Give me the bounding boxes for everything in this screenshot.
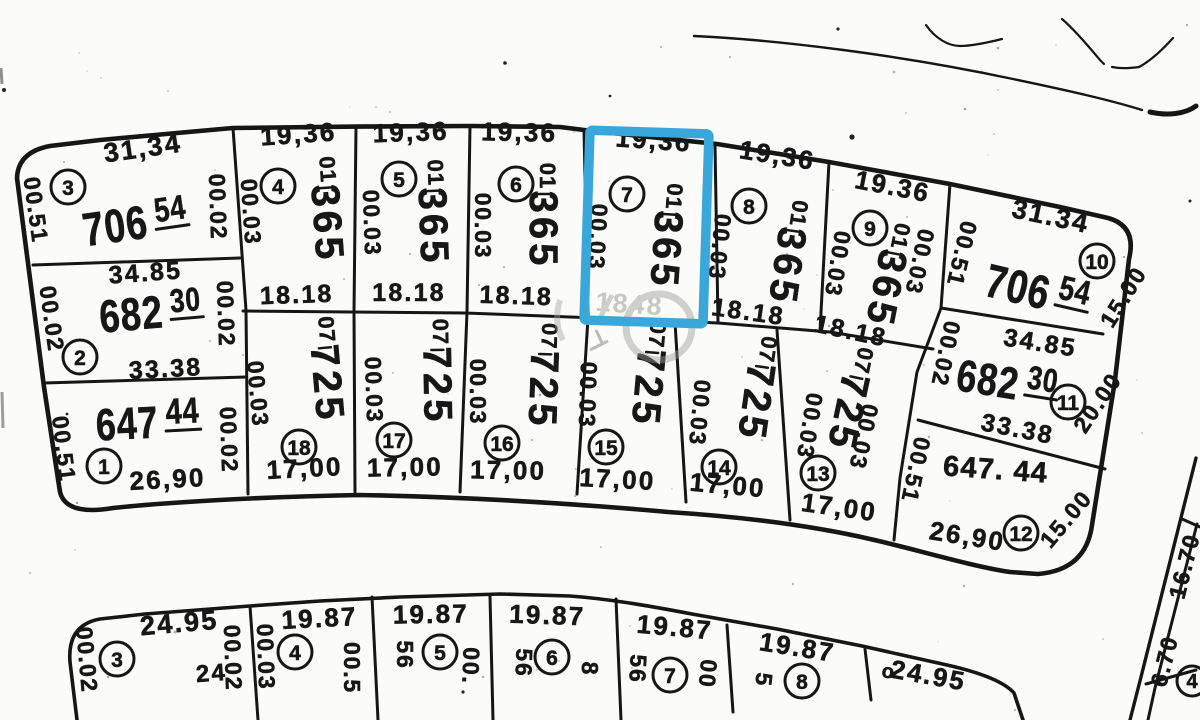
svg-text:24: 24 <box>195 659 228 688</box>
svg-text:5: 5 <box>750 671 777 688</box>
svg-text:647: 647 <box>95 397 160 451</box>
svg-text:07: 07 <box>428 318 453 345</box>
svg-text:26,90: 26,90 <box>129 462 207 496</box>
svg-text:17,00: 17,00 <box>367 451 444 482</box>
svg-text:00.03: 00.03 <box>252 623 280 690</box>
svg-text:01: 01 <box>423 159 449 186</box>
svg-text:00.02: 00.02 <box>204 173 232 240</box>
svg-text:18.18: 18.18 <box>372 279 446 307</box>
svg-text:00.03: 00.03 <box>360 356 388 423</box>
svg-text:00.03: 00.03 <box>465 359 491 426</box>
svg-text:01: 01 <box>661 183 688 211</box>
svg-text:44: 44 <box>165 389 201 432</box>
svg-text:4: 4 <box>289 642 301 665</box>
svg-text:19.87: 19.87 <box>509 599 586 632</box>
svg-text:01: 01 <box>535 163 560 189</box>
svg-text:19.87: 19.87 <box>281 601 359 635</box>
svg-text:00.02: 00.02 <box>215 406 243 473</box>
svg-text:19,36: 19,36 <box>481 116 558 147</box>
svg-text:07: 07 <box>754 335 782 365</box>
svg-text:725: 725 <box>520 350 567 430</box>
svg-text:01: 01 <box>314 156 341 184</box>
svg-text:56: 56 <box>510 648 537 678</box>
svg-text:1: 1 <box>98 456 110 479</box>
svg-text:10: 10 <box>1085 251 1108 274</box>
svg-text:00.: 00. <box>457 647 484 685</box>
svg-text:7: 7 <box>621 184 633 207</box>
svg-text:00.03: 00.03 <box>470 193 496 260</box>
svg-text:00.03: 00.03 <box>358 189 386 256</box>
svg-text:4: 4 <box>1186 671 1198 693</box>
svg-text:17,00: 17,00 <box>579 462 657 496</box>
svg-text:17,00: 17,00 <box>266 451 344 485</box>
svg-text:682: 682 <box>97 285 165 342</box>
svg-text:18.18: 18.18 <box>259 280 333 311</box>
svg-text:00.5: 00.5 <box>339 642 365 694</box>
svg-text:18.18: 18.18 <box>479 281 553 312</box>
svg-text:3: 3 <box>111 649 123 672</box>
svg-text:01: 01 <box>886 221 916 252</box>
svg-text:3: 3 <box>62 177 74 200</box>
svg-text:706: 706 <box>79 196 151 258</box>
svg-text:17,00: 17,00 <box>470 454 547 485</box>
svg-text:00.03: 00.03 <box>574 361 602 428</box>
svg-text:725: 725 <box>414 346 459 426</box>
svg-text:5: 5 <box>434 642 446 665</box>
svg-text:00: 00 <box>694 658 722 689</box>
svg-text:01: 01 <box>785 199 813 229</box>
svg-text:07: 07 <box>313 315 340 344</box>
svg-text:16: 16 <box>490 433 513 456</box>
svg-text:365: 365 <box>641 209 690 291</box>
svg-text:56: 56 <box>392 640 418 669</box>
svg-text:54: 54 <box>152 187 189 230</box>
svg-text:19,36: 19,36 <box>259 116 337 151</box>
svg-text:365: 365 <box>410 187 457 267</box>
svg-text:00.02: 00.02 <box>212 280 240 347</box>
svg-text:365: 365 <box>521 191 565 270</box>
svg-text:7: 7 <box>664 665 676 688</box>
svg-text:2: 2 <box>74 347 86 370</box>
svg-text:365: 365 <box>302 183 351 265</box>
svg-text:8: 8 <box>743 196 755 219</box>
svg-text:33.38: 33.38 <box>128 353 203 385</box>
svg-text:4: 4 <box>272 176 284 199</box>
svg-text:8: 8 <box>796 671 808 694</box>
svg-text:725: 725 <box>302 343 353 425</box>
svg-text:8: 8 <box>577 661 604 677</box>
svg-text:30: 30 <box>168 281 202 320</box>
svg-text:9: 9 <box>864 218 876 241</box>
svg-text:682: 682 <box>953 350 1023 410</box>
svg-text:12: 12 <box>1009 523 1032 546</box>
svg-text:15: 15 <box>594 437 618 460</box>
svg-text:6: 6 <box>510 174 522 197</box>
svg-text:6: 6 <box>546 647 558 670</box>
svg-text:19.87: 19.87 <box>393 598 470 629</box>
svg-text:17: 17 <box>382 430 405 453</box>
svg-text:13: 13 <box>806 463 829 486</box>
svg-text:19,36: 19,36 <box>372 116 449 149</box>
svg-text:56: 56 <box>624 654 651 685</box>
svg-text:00.03: 00.03 <box>236 178 267 246</box>
svg-text:5: 5 <box>393 169 405 192</box>
